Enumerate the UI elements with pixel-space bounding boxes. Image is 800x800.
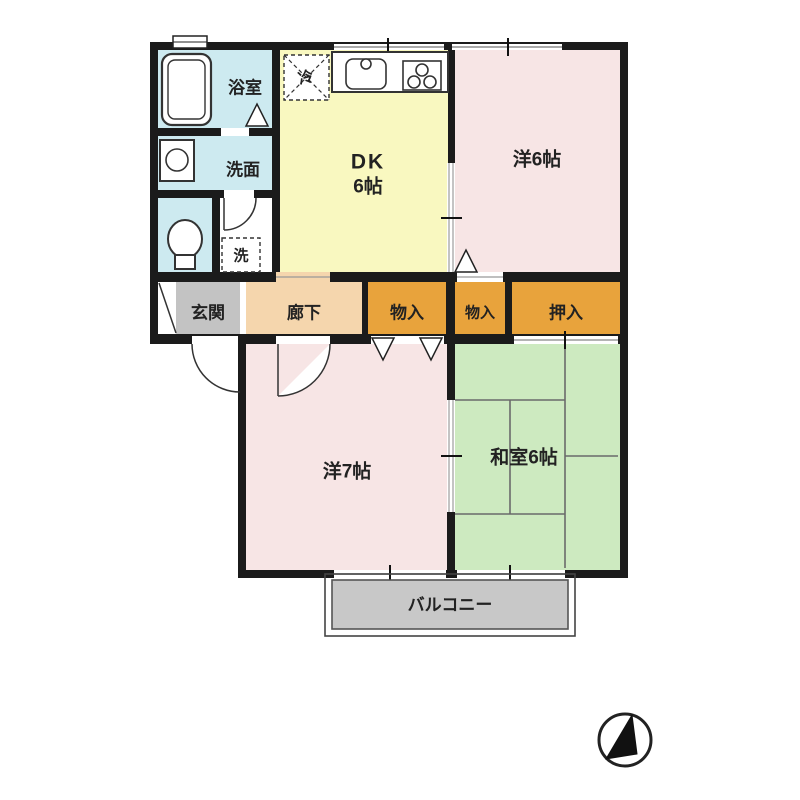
japanese6-label: 和室6帖 [490,446,558,469]
window-bath [173,36,207,48]
hallway-label: 廊下 [287,303,321,323]
dk-size-label: 6帖 [353,175,383,198]
floor-plan-page: 冷 洗 バルコニー 浴室 洗面 DK 6帖 洋6帖 玄関 廊下 物入 物入 押入… [0,0,800,800]
storage1-label: 物入 [390,303,424,323]
bathroom-label: 浴室 [228,78,262,98]
balcony: バルコニー [325,574,575,636]
front-door [192,336,240,392]
balcony-label: バルコニー [408,596,493,615]
washing-machine-icon [160,140,194,181]
dk-label: DK [351,151,385,174]
western7-label: 洋7帖 [323,460,372,483]
laundry-space-icon: 洗 [222,238,260,272]
kitchen-counter-icon [332,52,448,92]
opening-hall-dk [276,272,330,282]
room-western7 [246,344,447,570]
opening-storage2 [457,272,503,282]
entrance-hall-step [240,282,246,334]
refrigerator-space-icon: 冷 [284,55,329,100]
north-compass-icon [599,714,651,766]
storage2-label: 物入 [465,304,495,322]
bathtub-icon [162,54,211,125]
bathroom-door-gap [221,128,249,136]
western6-label: 洋6帖 [513,148,562,171]
floor-plan-drawing: 冷 洗 バルコニー 浴室 洗面 DK 6帖 洋6帖 玄関 廊下 物入 物入 押入… [0,0,800,800]
entrance-label: 玄関 [191,303,225,323]
laundry-label: 洗 [233,247,248,265]
oshiire-label: 押入 [549,303,583,323]
washroom-label: 洗面 [226,160,260,180]
